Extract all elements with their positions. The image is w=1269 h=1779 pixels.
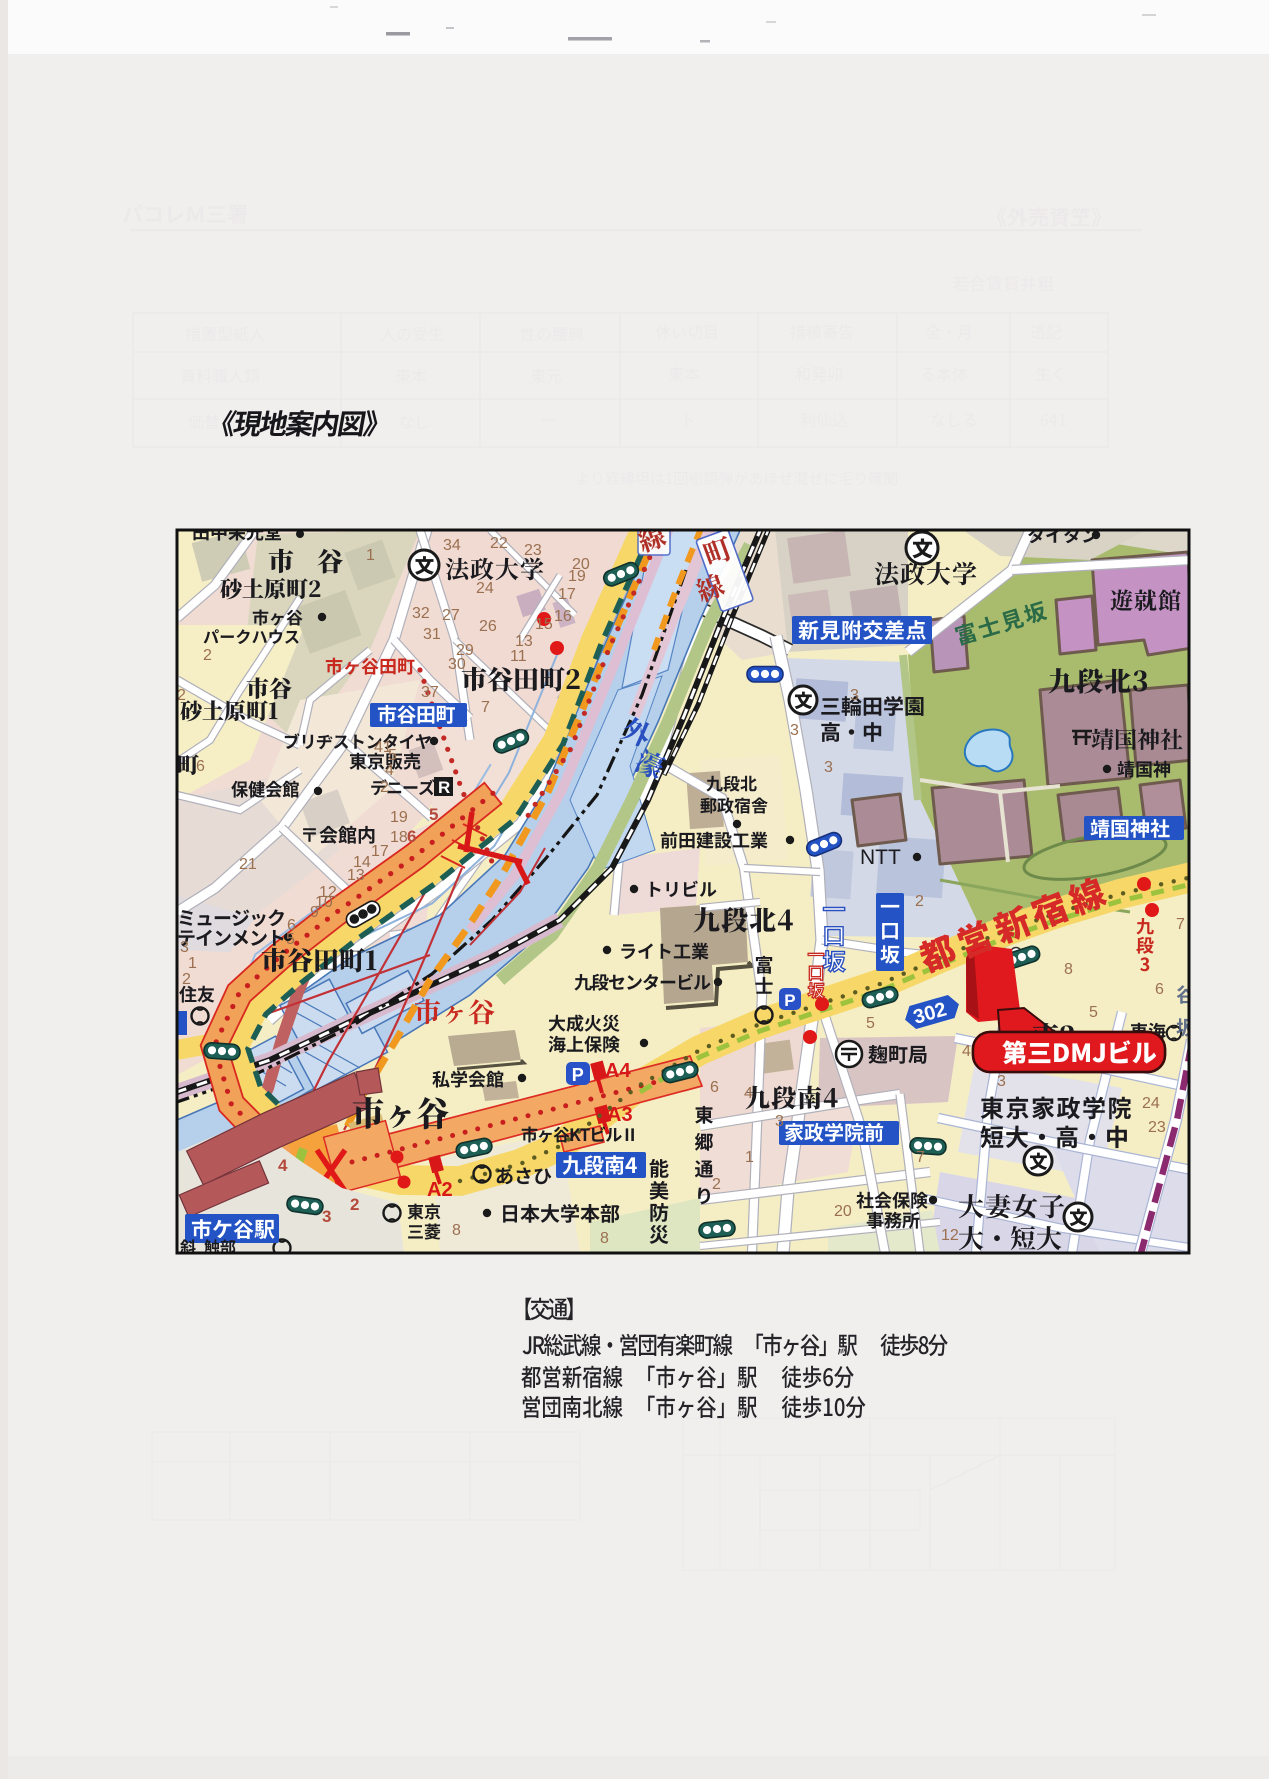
- svg-text:31: 31: [423, 626, 441, 643]
- svg-text:19: 19: [568, 568, 586, 585]
- svg-text:5: 5: [1089, 1004, 1098, 1021]
- svg-text:6: 6: [407, 827, 416, 846]
- svg-text:A4: A4: [605, 1060, 631, 1082]
- svg-text:11: 11: [510, 648, 527, 665]
- svg-text:1: 1: [188, 955, 197, 972]
- svg-text:NTT: NTT: [860, 846, 901, 869]
- svg-text:3: 3: [180, 939, 189, 956]
- svg-text:24: 24: [476, 580, 494, 597]
- svg-text:6: 6: [1155, 981, 1164, 998]
- svg-text:26: 26: [479, 618, 497, 635]
- svg-text:5: 5: [429, 805, 438, 824]
- svg-text:34: 34: [443, 537, 461, 554]
- svg-text:A3: A3: [607, 1104, 633, 1126]
- svg-text:17: 17: [558, 586, 576, 603]
- svg-text:2: 2: [915, 893, 924, 910]
- svg-text:9: 9: [310, 904, 319, 921]
- svg-text:23: 23: [1148, 1119, 1166, 1136]
- svg-text:16: 16: [554, 608, 572, 625]
- svg-text:A2: A2: [427, 1179, 453, 1201]
- svg-text:6: 6: [196, 758, 205, 775]
- svg-text:5: 5: [286, 931, 295, 948]
- svg-text:5: 5: [866, 1015, 875, 1032]
- svg-text:8: 8: [600, 1230, 609, 1247]
- svg-text:32: 32: [412, 605, 430, 622]
- svg-text:7: 7: [481, 699, 490, 716]
- svg-text:7: 7: [916, 1149, 925, 1166]
- svg-text:12: 12: [941, 1227, 959, 1244]
- svg-text:15: 15: [535, 616, 553, 633]
- svg-text:3: 3: [790, 722, 799, 739]
- svg-text:1: 1: [745, 1149, 754, 1166]
- svg-text:3: 3: [824, 759, 833, 776]
- svg-text:17: 17: [371, 843, 389, 860]
- svg-text:3: 3: [850, 687, 859, 704]
- svg-text:P: P: [784, 991, 795, 1010]
- svg-text:37: 37: [421, 684, 439, 701]
- svg-text:8: 8: [1064, 961, 1073, 978]
- svg-text:2: 2: [380, 779, 389, 796]
- svg-text:3: 3: [997, 1073, 1006, 1090]
- svg-text:6: 6: [710, 1079, 719, 1096]
- svg-text:8: 8: [452, 1222, 461, 1239]
- svg-text:18: 18: [390, 829, 408, 846]
- svg-text:4: 4: [278, 1156, 288, 1175]
- svg-text:24: 24: [1142, 1095, 1160, 1112]
- svg-text:2: 2: [182, 971, 191, 988]
- svg-text:P: P: [572, 1065, 584, 1085]
- svg-text:4: 4: [385, 762, 394, 779]
- svg-text:3: 3: [322, 1207, 331, 1226]
- svg-text:13: 13: [347, 867, 365, 884]
- svg-text:7: 7: [1176, 916, 1185, 933]
- svg-text:20: 20: [834, 1203, 852, 1220]
- svg-text:1: 1: [366, 547, 375, 564]
- svg-text:2: 2: [712, 1176, 721, 1193]
- svg-text:4: 4: [744, 1085, 753, 1102]
- svg-text:R: R: [438, 778, 450, 797]
- svg-text:3: 3: [775, 1113, 784, 1130]
- svg-text:30: 30: [448, 656, 466, 673]
- svg-text:2: 2: [350, 1195, 359, 1214]
- svg-text:19: 19: [390, 809, 408, 826]
- svg-text:2: 2: [203, 647, 212, 664]
- svg-text:27: 27: [442, 607, 460, 624]
- svg-text:23: 23: [524, 542, 542, 559]
- svg-text:21: 21: [239, 856, 257, 873]
- svg-text:4: 4: [962, 1043, 971, 1060]
- svg-text:22: 22: [490, 535, 508, 552]
